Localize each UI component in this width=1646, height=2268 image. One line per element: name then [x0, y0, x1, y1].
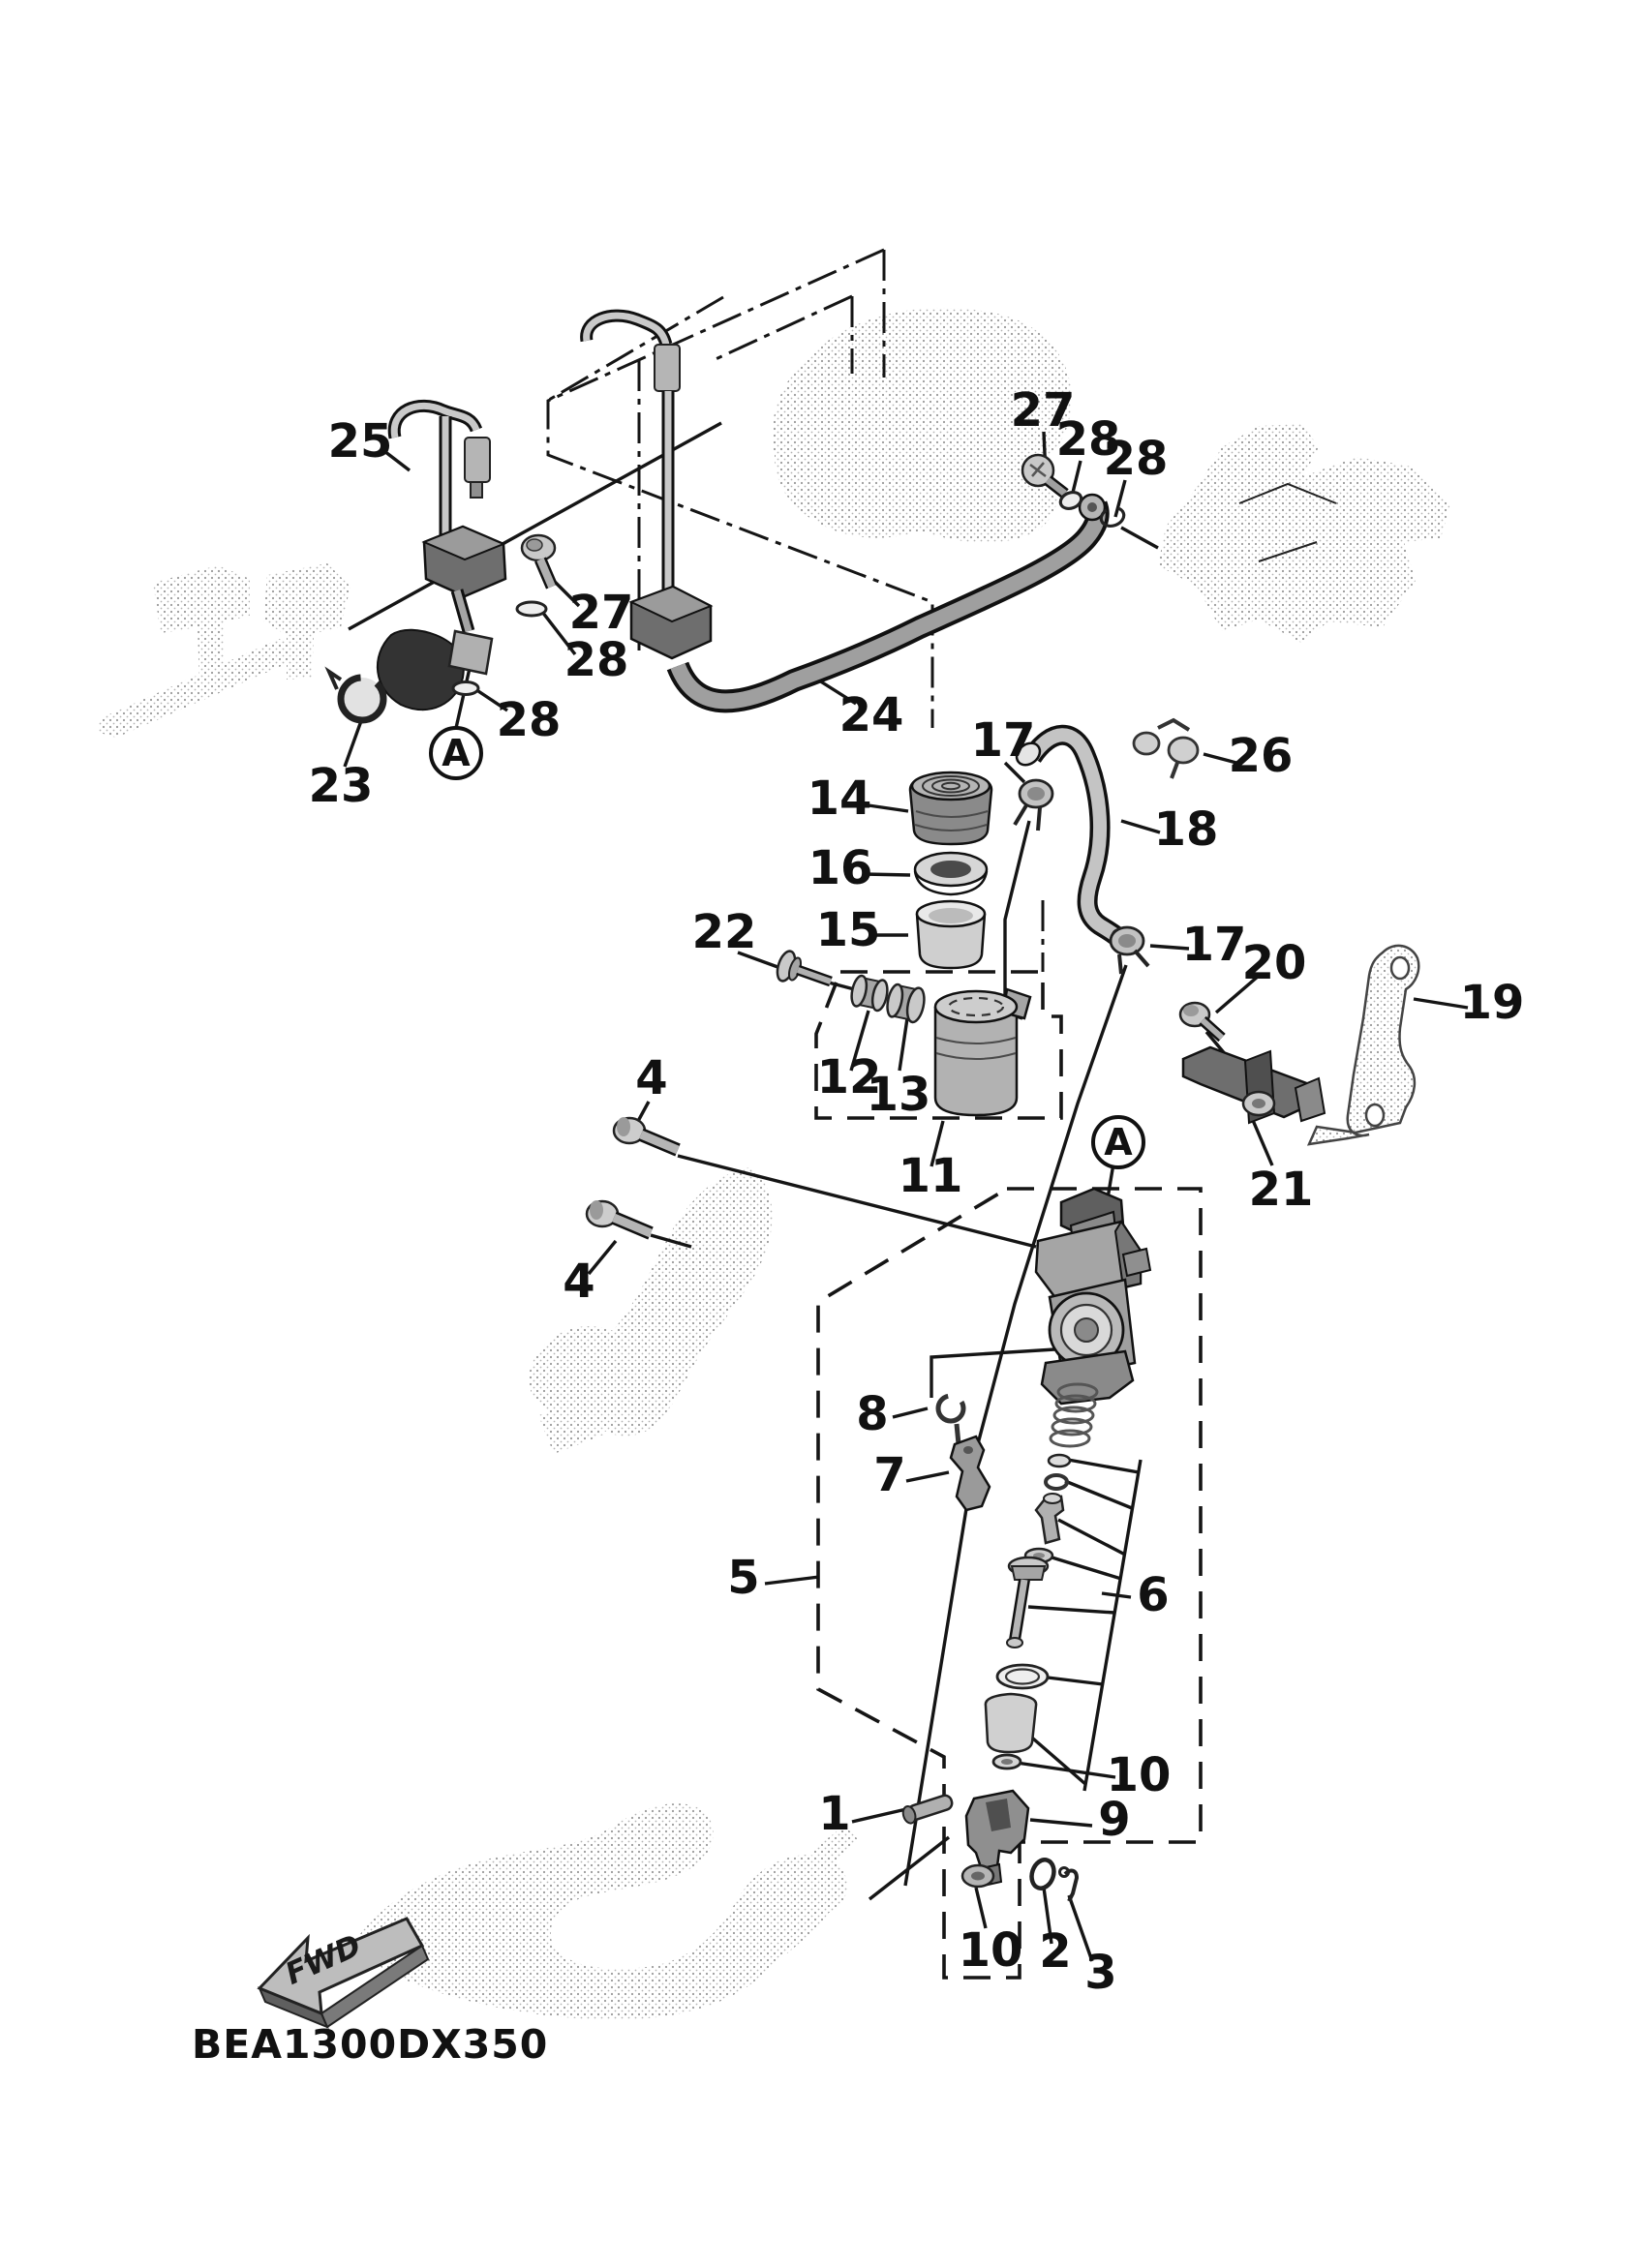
union-block-center	[631, 587, 711, 658]
callout-21: 21	[1249, 1163, 1314, 1217]
part-10-nut-lower	[962, 1865, 993, 1887]
callout-17: 17	[1182, 918, 1247, 972]
footrest-bracket-reference	[529, 1167, 772, 1454]
callout-9: 9	[1098, 1793, 1130, 1847]
part-2-oring	[1028, 1857, 1057, 1890]
callout-3: 3	[1084, 1946, 1116, 2000]
parts-diagram-page: FWD AA 252728282324272828172614181615221…	[0, 0, 1646, 2268]
callout-4: 4	[563, 1255, 594, 1309]
part-15-diaphragm	[917, 901, 985, 968]
callout-1: 1	[818, 1787, 850, 1841]
callout-26: 26	[1229, 729, 1294, 783]
callout-28: 28	[564, 633, 629, 687]
leader-line	[906, 1472, 949, 1481]
pipe-guide-bracket-reference	[97, 563, 351, 738]
part-21-bracket	[1183, 1047, 1325, 1123]
callout-6: 6	[1137, 1568, 1169, 1622]
part-23-clamp	[329, 672, 383, 720]
leader-line	[765, 1577, 819, 1584]
callout-23: 23	[309, 759, 374, 813]
part-4-bolt-lower	[587, 1200, 651, 1233]
callout-13: 13	[867, 1068, 931, 1122]
part-14-reservoir-cap	[910, 772, 991, 844]
part-19-stay-bracket	[1309, 946, 1418, 1144]
leader-line	[1058, 1520, 1125, 1555]
callout-20: 20	[1242, 936, 1307, 990]
leader-line	[1121, 528, 1158, 548]
part-13-grommet	[885, 983, 928, 1024]
callout-7: 7	[873, 1448, 905, 1502]
part-4-bolt-upper	[614, 1117, 678, 1150]
part-7-joint	[951, 1436, 990, 1510]
part-6-piston-kit	[986, 1384, 1097, 1752]
callout-17: 17	[971, 713, 1036, 768]
brake-pedal-reference	[360, 1803, 858, 2019]
master-cylinder-body	[1036, 1189, 1150, 1404]
exploded-parts-diagram: FWD AA 252728282324272828172614181615221…	[0, 0, 1646, 2268]
callout-5: 5	[727, 1551, 759, 1605]
callout-28: 28	[1104, 432, 1169, 486]
part-28-washer-left-lower	[453, 682, 478, 695]
leader-line	[1065, 1481, 1132, 1508]
leader-line	[976, 1888, 986, 1928]
callout-25: 25	[328, 414, 393, 469]
callout-4: 4	[635, 1051, 667, 1105]
drawing-code: BEA1300DX350	[192, 2021, 548, 2068]
part-10-washer-upper	[993, 1755, 1021, 1769]
leader-line	[1068, 1460, 1139, 1472]
union-block-left	[424, 527, 505, 596]
callout-18: 18	[1154, 802, 1219, 857]
leader-line	[893, 1408, 928, 1417]
leader-line	[1017, 1763, 1115, 1777]
callout-24: 24	[839, 688, 904, 742]
leader-line	[1102, 1593, 1131, 1597]
callout-10: 10	[959, 1923, 1023, 1978]
leader-line	[1046, 1556, 1121, 1579]
section-marker-letter: A	[442, 732, 471, 774]
part-17-clamp-lower	[1111, 927, 1148, 974]
part-16-diaphragm-plate	[915, 853, 987, 894]
callout-16: 16	[808, 841, 873, 895]
part-27-union-bolt-left	[522, 535, 555, 587]
part-11-reservoir-tank	[935, 989, 1030, 1115]
part-25-brake-pipe	[394, 406, 490, 538]
leader-line	[1030, 1820, 1092, 1826]
part-20-bolt	[1180, 1003, 1222, 1038]
callout-14: 14	[808, 771, 872, 826]
callout-8: 8	[856, 1387, 888, 1441]
section-marker-letter: A	[1104, 1121, 1133, 1164]
part-1-clevis-pin	[901, 1793, 955, 1825]
leader-line	[1028, 1607, 1114, 1613]
callout-11: 11	[899, 1149, 963, 1203]
brake-caliper-reference	[1158, 424, 1450, 643]
callout-28: 28	[497, 693, 562, 747]
callout-22: 22	[692, 905, 757, 959]
leader-line	[899, 1018, 907, 1071]
callout-2: 2	[1039, 1924, 1071, 1979]
part-28-washer-left-upper	[517, 602, 546, 616]
part-8-circlip-and-pin	[938, 1396, 963, 1444]
fwd-direction-arrow: FWD	[259, 1919, 428, 2027]
part-24-hose-pipe	[587, 316, 680, 594]
leader-line	[1026, 1733, 1085, 1784]
callout-27: 27	[569, 586, 634, 640]
leader-line	[1084, 1460, 1141, 1791]
callout-15: 15	[816, 903, 881, 957]
part-17-clamp-upper	[1015, 780, 1052, 831]
part-12-grommet	[849, 975, 890, 1013]
leader-line	[869, 1837, 949, 1899]
leader-line	[852, 1809, 906, 1822]
callout-19: 19	[1460, 976, 1525, 1030]
leader-line	[1048, 1678, 1103, 1684]
part-26-clamp	[1134, 720, 1198, 778]
